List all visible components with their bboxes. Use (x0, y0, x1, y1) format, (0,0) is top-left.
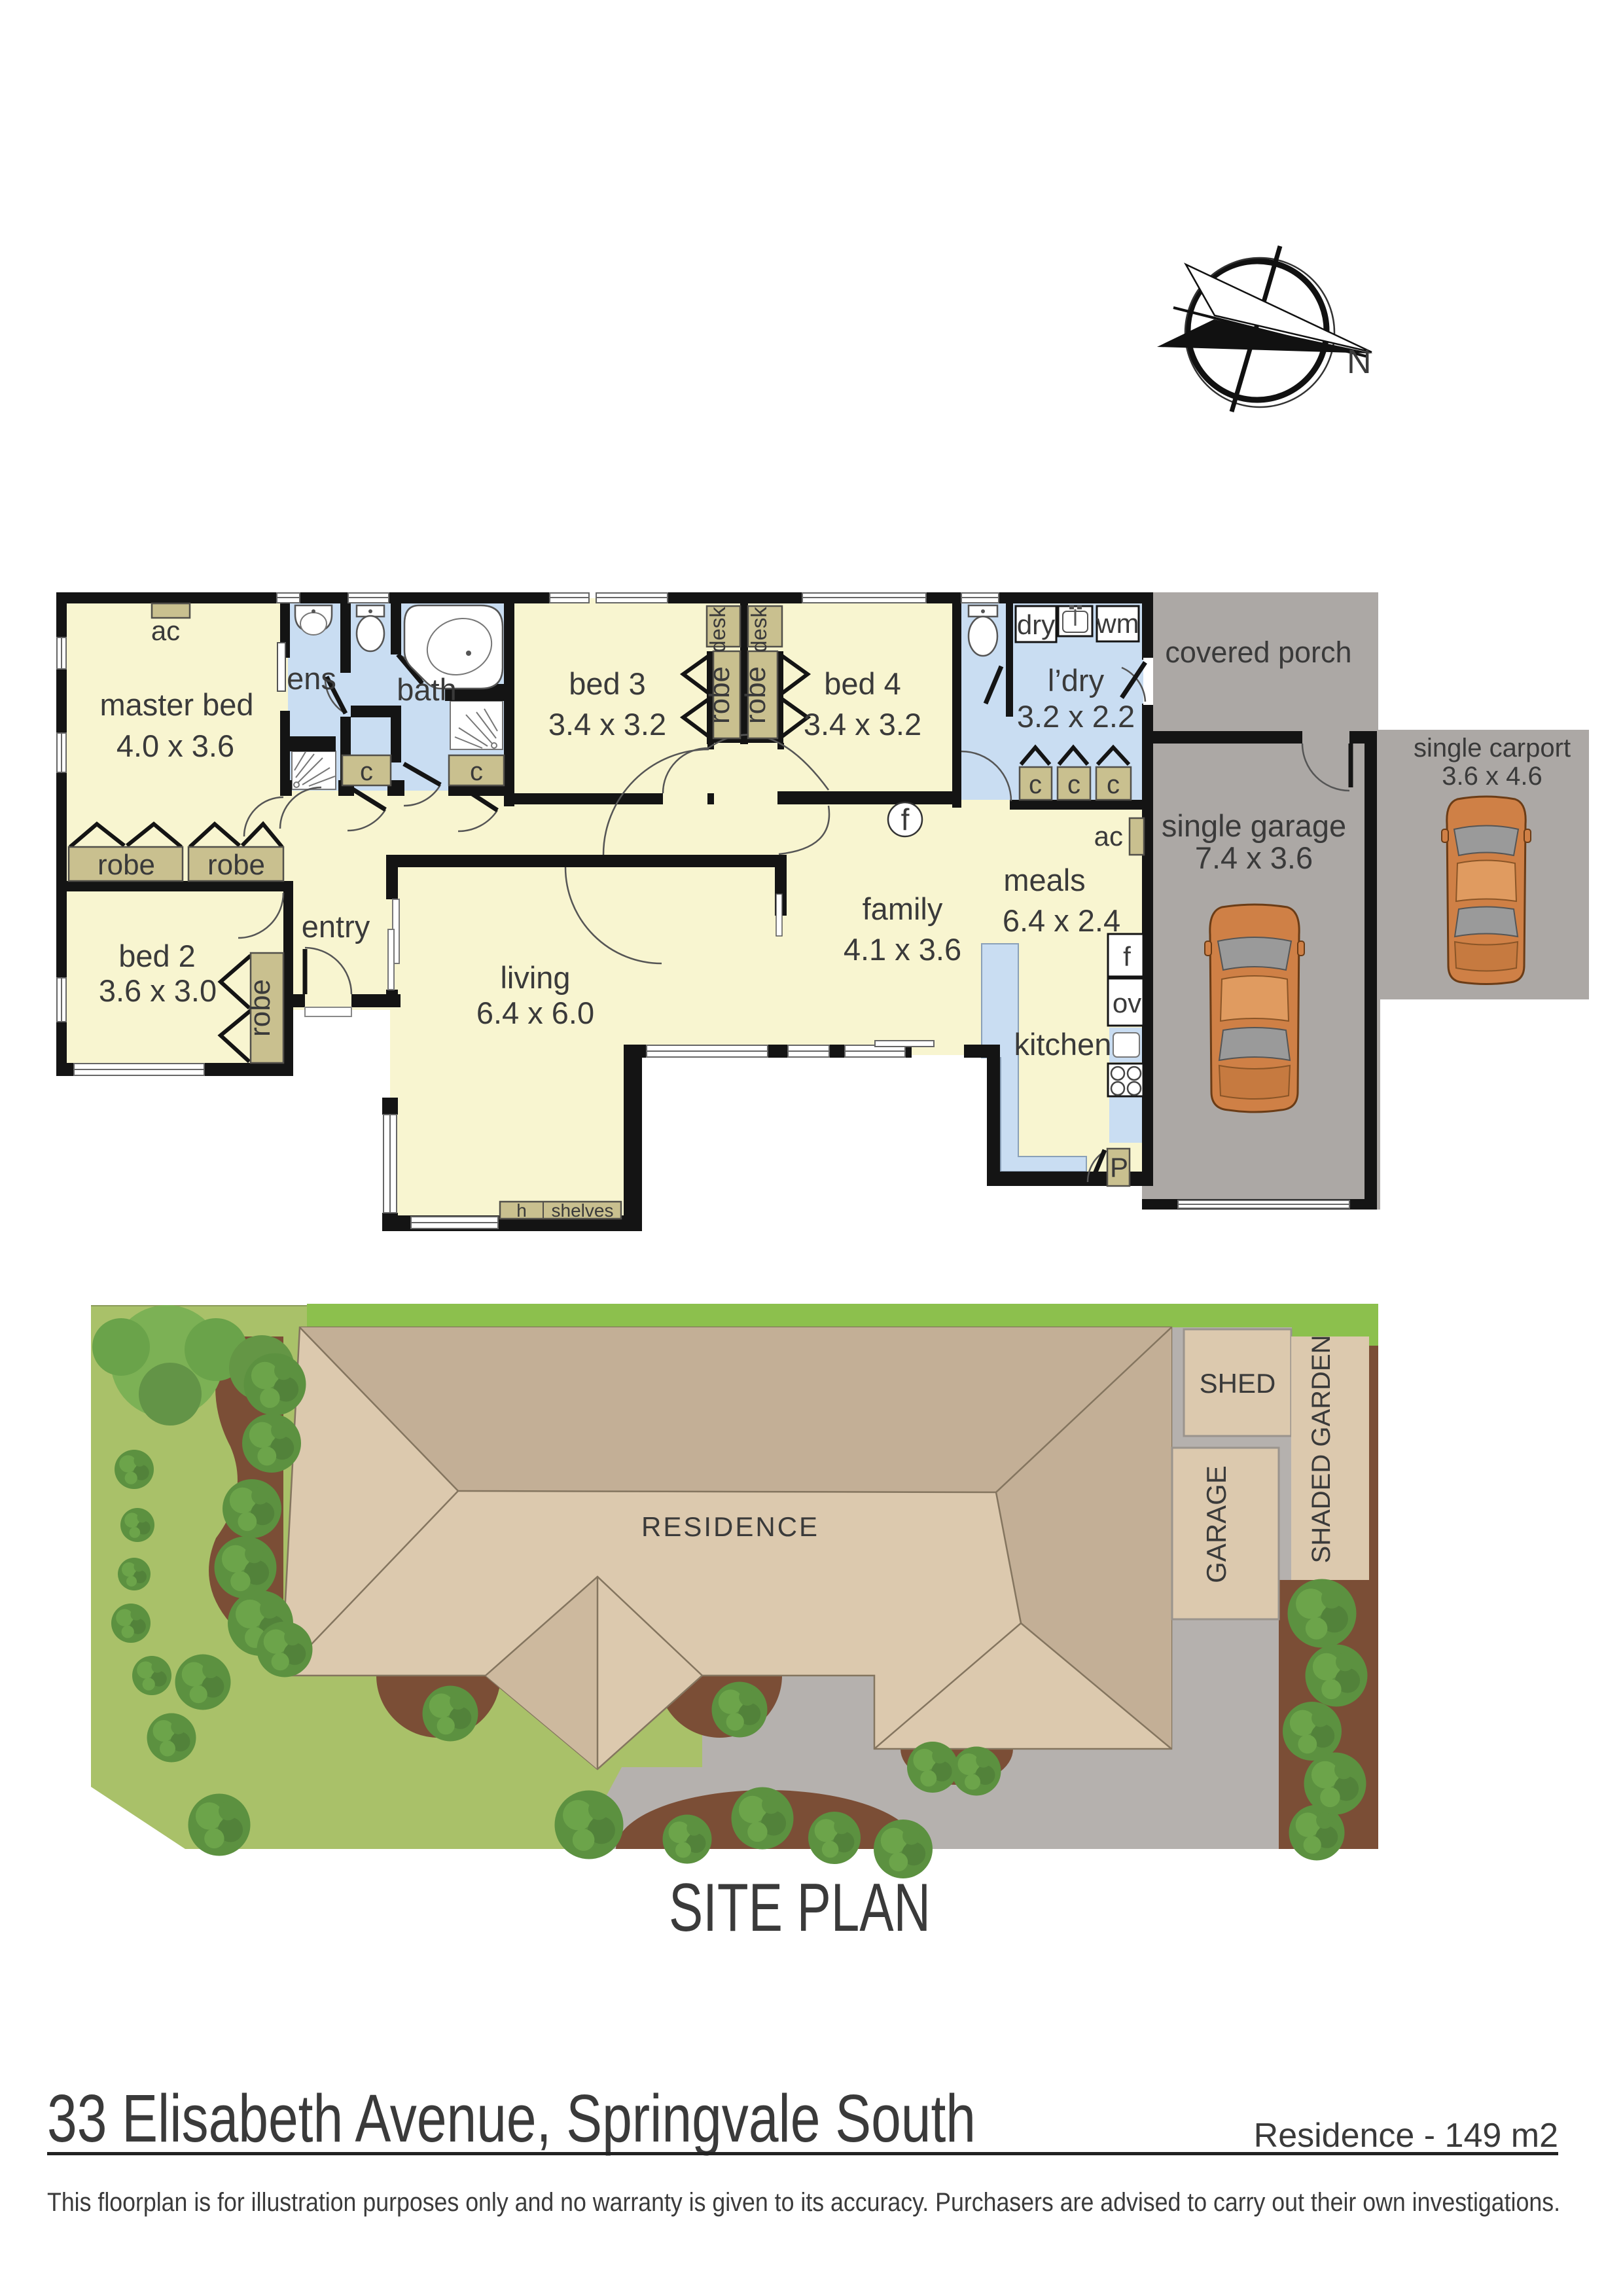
svg-text:3.2 x 2.2: 3.2 x 2.2 (1017, 699, 1135, 734)
svg-text:N: N (1347, 343, 1372, 381)
svg-text:3.6 x 3.0: 3.6 x 3.0 (99, 973, 217, 1008)
svg-text:c: c (470, 757, 483, 786)
svg-text:entry: entry (302, 909, 370, 944)
svg-text:6.4 x 6.0: 6.4 x 6.0 (476, 996, 594, 1030)
svg-text:ens: ens (287, 661, 336, 696)
svg-text:GARAGE: GARAGE (1201, 1465, 1232, 1583)
svg-text:ac: ac (151, 615, 180, 646)
svg-text:bed 4: bed 4 (824, 666, 901, 701)
svg-text:desk: desk (747, 607, 771, 653)
svg-text:P: P (1110, 1152, 1128, 1183)
svg-text:robe: robe (207, 849, 265, 881)
svg-text:bed 2: bed 2 (118, 939, 196, 973)
svg-text:33 Elisabeth Avenue, Springval: 33 Elisabeth Avenue, Springvale South (47, 2081, 976, 2156)
svg-text:single carport: single carport (1414, 734, 1571, 762)
svg-text:robe: robe (98, 849, 155, 881)
svg-text:6.4 x 2.4: 6.4 x 2.4 (1003, 903, 1120, 938)
svg-text:ac: ac (1094, 821, 1123, 852)
svg-text:l’dry: l’dry (1048, 663, 1105, 698)
svg-text:SHED: SHED (1200, 1368, 1276, 1399)
svg-text:master bed: master bed (99, 687, 253, 722)
svg-text:shelves: shelves (552, 1200, 614, 1221)
svg-text:f: f (901, 802, 910, 836)
svg-text:kitchen: kitchen (1014, 1027, 1112, 1062)
svg-text:f: f (1123, 941, 1131, 972)
svg-text:robe: robe (740, 666, 772, 724)
svg-text:living: living (500, 960, 570, 995)
svg-text:dry: dry (1017, 609, 1055, 640)
svg-text:meals: meals (1003, 863, 1085, 897)
svg-text:covered porch: covered porch (1165, 636, 1351, 669)
svg-text:SHADED GARDEN: SHADED GARDEN (1307, 1335, 1336, 1564)
svg-text:3.4 x 3.2: 3.4 x 3.2 (804, 707, 921, 742)
svg-text:robe: robe (704, 666, 736, 724)
svg-text:This floorplan is for illustra: This floorplan is for illustration purpo… (47, 2188, 1560, 2217)
svg-text:c: c (1107, 770, 1120, 799)
svg-text:7.4 x 3.6: 7.4 x 3.6 (1195, 840, 1313, 875)
svg-text:wm: wm (1096, 608, 1139, 639)
svg-text:desk: desk (705, 607, 730, 653)
svg-text:3.4 x 3.2: 3.4 x 3.2 (548, 707, 666, 742)
svg-text:c: c (1067, 770, 1080, 799)
svg-text:ov: ov (1113, 988, 1141, 1018)
svg-text:3.6 x 4.6: 3.6 x 4.6 (1442, 762, 1542, 791)
svg-text:c: c (1029, 770, 1042, 799)
svg-text:bed 3: bed 3 (569, 666, 646, 701)
svg-text:robe: robe (244, 979, 276, 1037)
svg-text:4.0 x 3.6: 4.0 x 3.6 (116, 728, 234, 763)
svg-text:family: family (863, 891, 943, 926)
svg-text:RESIDENCE: RESIDENCE (641, 1511, 819, 1542)
svg-text:Residence - 149 m2: Residence - 149 m2 (1254, 2117, 1558, 2155)
svg-text:single garage: single garage (1162, 808, 1346, 843)
svg-text:h: h (516, 1200, 527, 1221)
svg-text:c: c (360, 757, 373, 786)
svg-text:bath: bath (397, 672, 456, 707)
svg-text:SITE PLAN: SITE PLAN (669, 1870, 931, 1946)
svg-text:4.1 x 3.6: 4.1 x 3.6 (844, 932, 961, 967)
